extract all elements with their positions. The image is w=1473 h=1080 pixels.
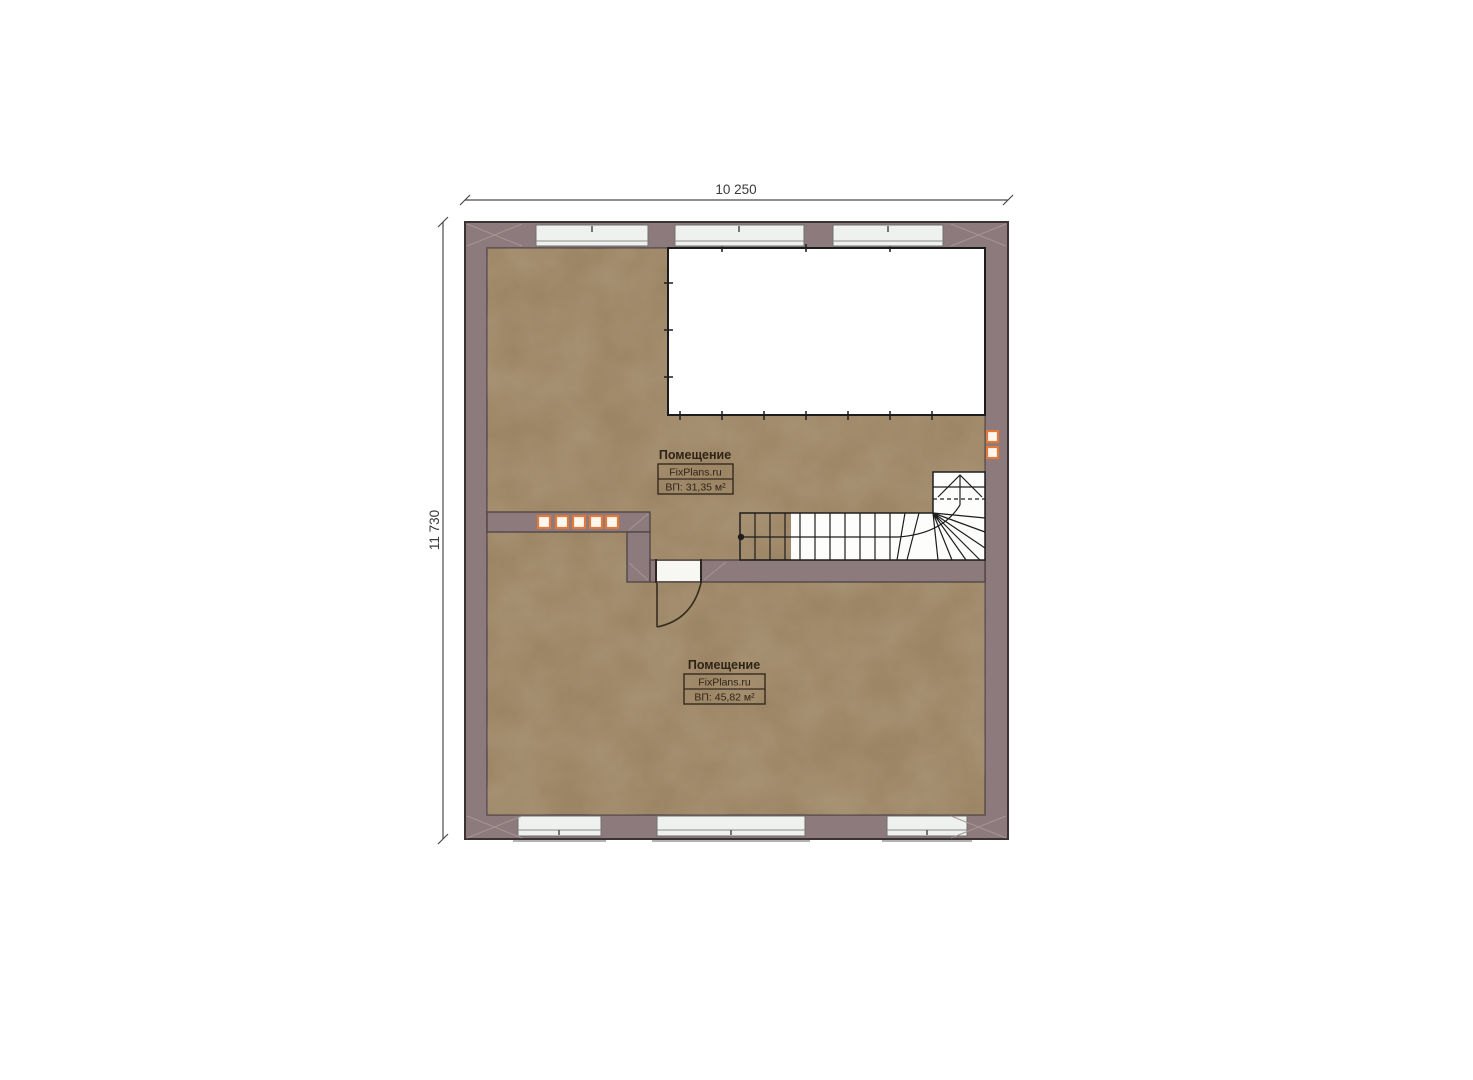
dimension-horizontal: 10 250	[460, 182, 1013, 205]
windows-top	[536, 225, 943, 246]
room-area: ВП: 45,82 м²	[694, 692, 755, 704]
dimension-vertical: 11 730	[427, 217, 448, 844]
room-title: Помещение	[659, 448, 731, 462]
marker-square-2	[556, 516, 568, 528]
marker-square-1	[538, 516, 550, 528]
marker-square-right-2	[987, 447, 998, 458]
window-top-1	[536, 225, 648, 246]
room-label-upper: Помещение FixPlans.ru ВП: 31,35 м²	[658, 448, 733, 494]
room-area: ВП: 31,35 м²	[665, 482, 726, 494]
marker-square-3	[573, 516, 585, 528]
marker-square-4	[590, 516, 602, 528]
void-opening	[664, 244, 985, 420]
room-brand: FixPlans.ru	[669, 467, 722, 479]
interior-wall-b	[627, 532, 650, 582]
floor-plan-drawing: 10 250 11 730	[0, 0, 1473, 1080]
marker-square-5	[606, 516, 618, 528]
window-top-3	[833, 225, 943, 246]
dimension-height-label: 11 730	[427, 510, 442, 550]
room-brand: FixPlans.ru	[698, 677, 751, 689]
room-title: Помещение	[688, 658, 760, 672]
window-top-2	[675, 225, 804, 246]
dimension-width-label: 10 250	[715, 182, 756, 197]
marker-square-right-1	[987, 431, 998, 442]
floor-plan-page: 10 250 11 730	[0, 0, 1473, 1080]
